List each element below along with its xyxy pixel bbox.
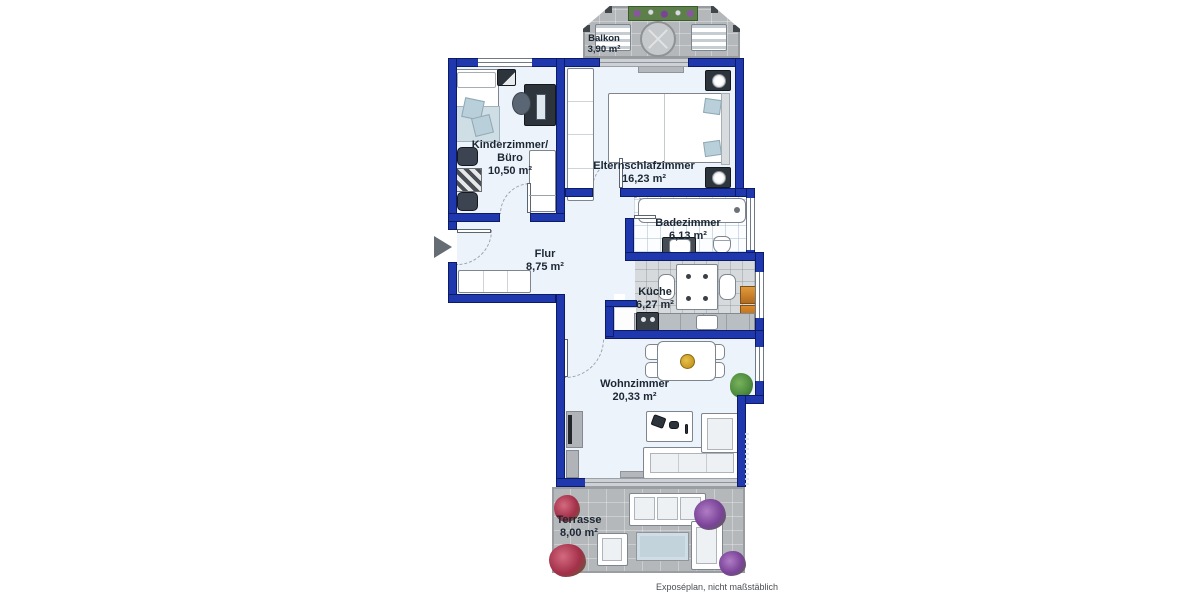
window bbox=[746, 198, 755, 250]
room-name: Terrasse bbox=[549, 514, 609, 527]
door-gap bbox=[593, 188, 620, 197]
tv bbox=[568, 415, 572, 444]
room-name: Wohnzimmer bbox=[582, 378, 687, 391]
entrance-arrow-icon bbox=[434, 236, 452, 258]
desk-chair bbox=[512, 92, 531, 115]
door-gap bbox=[625, 197, 634, 218]
wall-shelf bbox=[497, 69, 516, 86]
wall bbox=[448, 58, 457, 230]
wall bbox=[620, 188, 746, 197]
wall bbox=[565, 188, 593, 197]
wall bbox=[625, 218, 634, 254]
sofa-cushions bbox=[650, 453, 734, 473]
window bbox=[755, 272, 764, 318]
room-label-wohnzimmer: Wohnzimmer 20,33 m² bbox=[582, 378, 687, 404]
scale-disclaimer: Exposéplan, nicht maßstäblich bbox=[530, 582, 778, 592]
room-name: Kinderzimmer/ bbox=[460, 139, 560, 152]
chair-cushion bbox=[602, 538, 622, 561]
room-area: 10,50 m² bbox=[460, 165, 560, 178]
room-label-kinderzimmer: Kinderzimmer/ Büro 10,50 m² bbox=[460, 139, 560, 179]
room-label-badezimmer: Badezimmer 6,13 m² bbox=[638, 217, 738, 243]
watermark-text bbox=[745, 430, 749, 485]
balcony-chair bbox=[691, 24, 727, 51]
pillow bbox=[703, 98, 722, 115]
kitchen-sink-unit bbox=[636, 312, 659, 331]
room-area: 3,90 m² bbox=[576, 44, 632, 55]
wardrobe-line bbox=[529, 195, 556, 196]
pillow bbox=[703, 140, 722, 157]
door-gap bbox=[565, 330, 605, 339]
room-label-kueche: Küche 6,27 m² bbox=[615, 286, 695, 312]
balcony-post bbox=[733, 25, 740, 32]
place-setting bbox=[686, 274, 691, 279]
flower-box bbox=[628, 6, 698, 21]
lamp bbox=[712, 171, 726, 185]
balcony-sliding-door bbox=[600, 58, 688, 67]
room-name: Flur bbox=[505, 248, 585, 261]
place-setting bbox=[703, 296, 708, 301]
stove bbox=[696, 315, 718, 330]
balcony-post bbox=[583, 25, 590, 32]
armchair bbox=[457, 192, 478, 211]
wall bbox=[556, 294, 565, 487]
sofa-cushion bbox=[634, 497, 655, 520]
room-name: Balkon bbox=[576, 33, 632, 44]
bathtub-faucet bbox=[734, 207, 740, 213]
balcony-post bbox=[711, 6, 718, 13]
chair-cushion bbox=[696, 527, 717, 564]
bed-headboard bbox=[721, 93, 730, 165]
lamp bbox=[712, 74, 726, 88]
knob bbox=[650, 317, 655, 322]
pantry-crate bbox=[740, 286, 756, 304]
room-area: 8,00 m² bbox=[549, 527, 609, 540]
duvet-split bbox=[664, 94, 665, 162]
door-leaf bbox=[457, 229, 491, 233]
room-label-elternschlafzimmer: Elternschlafzimmer 16,23 m² bbox=[574, 160, 714, 186]
door-leaf bbox=[527, 183, 531, 213]
balcony-door-bar bbox=[638, 66, 684, 73]
game-controller bbox=[669, 421, 679, 429]
door-gap bbox=[500, 213, 530, 222]
room-area: 20,33 m² bbox=[582, 391, 687, 404]
room-label-terrasse: Terrasse 8,00 m² bbox=[549, 514, 609, 540]
knob bbox=[641, 317, 646, 322]
floorplan-canvas: Balkon 3,90 m² Kinderzimmer/ Büro 10,50 … bbox=[0, 0, 1200, 600]
terrace-sliding-door bbox=[585, 478, 737, 487]
wall bbox=[625, 252, 764, 261]
kitchen-chair bbox=[719, 274, 736, 300]
wall bbox=[448, 294, 556, 303]
flower-pot bbox=[549, 544, 586, 577]
remote bbox=[685, 424, 688, 434]
terrace-table bbox=[636, 532, 689, 561]
room-name: Elternschlafzimmer bbox=[574, 160, 714, 173]
room-area: 8,75 m² bbox=[505, 261, 585, 274]
balcony-round-table bbox=[640, 21, 676, 57]
room-area: 16,23 m² bbox=[574, 173, 714, 186]
shelf bbox=[566, 450, 579, 478]
flower-pot bbox=[719, 551, 746, 576]
room-label-balkon: Balkon 3,90 m² bbox=[576, 33, 632, 56]
room-name: Büro bbox=[460, 152, 560, 165]
wall bbox=[605, 330, 764, 339]
wall bbox=[448, 213, 500, 222]
bed-pillow bbox=[457, 72, 496, 88]
room-area: 6,13 m² bbox=[638, 230, 738, 243]
place-setting bbox=[703, 274, 708, 279]
room-name: Badezimmer bbox=[638, 217, 738, 230]
room-area: 6,27 m² bbox=[615, 299, 695, 312]
room-name: Küche bbox=[615, 286, 695, 299]
wall bbox=[735, 58, 744, 197]
balcony-post bbox=[605, 6, 612, 13]
monitor bbox=[536, 94, 546, 120]
window bbox=[478, 58, 532, 67]
sofa-cushion bbox=[657, 497, 678, 520]
fruit-bowl bbox=[680, 354, 695, 369]
room-label-flur: Flur 8,75 m² bbox=[505, 248, 585, 274]
sofa-chaise bbox=[707, 418, 733, 450]
wall bbox=[530, 213, 565, 222]
window bbox=[755, 347, 764, 381]
flower-pot bbox=[694, 499, 726, 530]
